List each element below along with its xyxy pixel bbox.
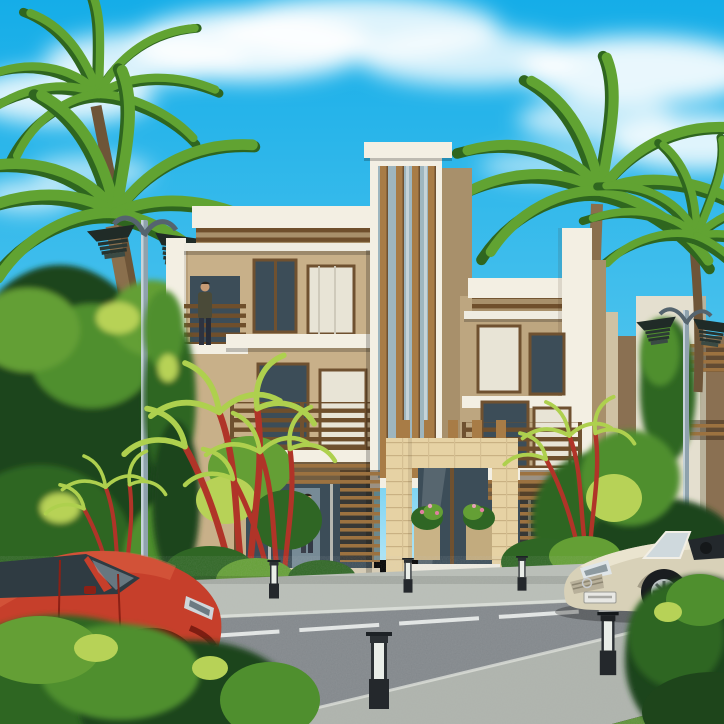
architectural-rendering — [0, 0, 724, 724]
